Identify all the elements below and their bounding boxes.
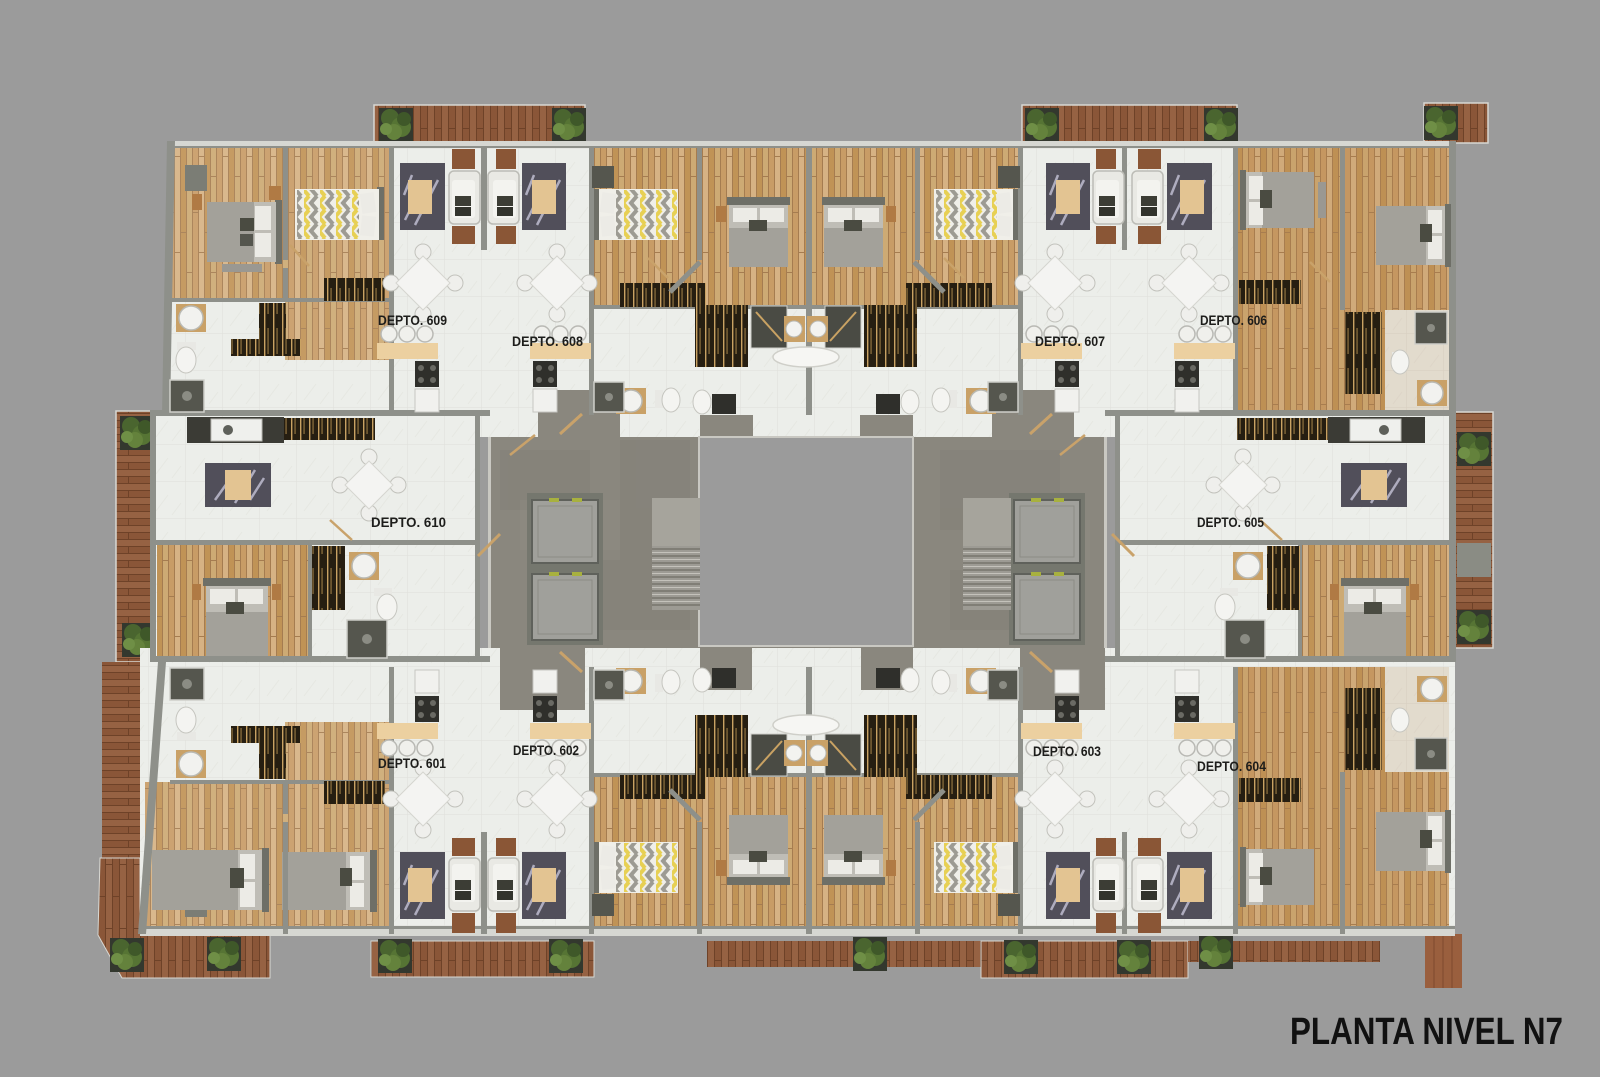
svg-text:DEPTO. 605: DEPTO. 605	[1197, 514, 1264, 530]
svg-text:DEPTO. 607: DEPTO. 607	[1035, 333, 1105, 349]
svg-text:DEPTO. 601: DEPTO. 601	[378, 755, 446, 771]
svg-text:DEPTO. 603: DEPTO. 603	[1033, 743, 1101, 759]
svg-text:PLANTA NIVEL N7: PLANTA NIVEL N7	[1290, 1011, 1563, 1053]
svg-text:DEPTO. 606: DEPTO. 606	[1200, 312, 1267, 328]
svg-text:DEPTO. 604: DEPTO. 604	[1197, 758, 1266, 774]
svg-text:DEPTO. 602: DEPTO. 602	[513, 742, 579, 758]
svg-text:DEPTO. 609: DEPTO. 609	[378, 312, 447, 328]
svg-text:DEPTO. 608: DEPTO. 608	[512, 333, 583, 349]
svg-text:DEPTO. 610: DEPTO. 610	[371, 514, 446, 530]
